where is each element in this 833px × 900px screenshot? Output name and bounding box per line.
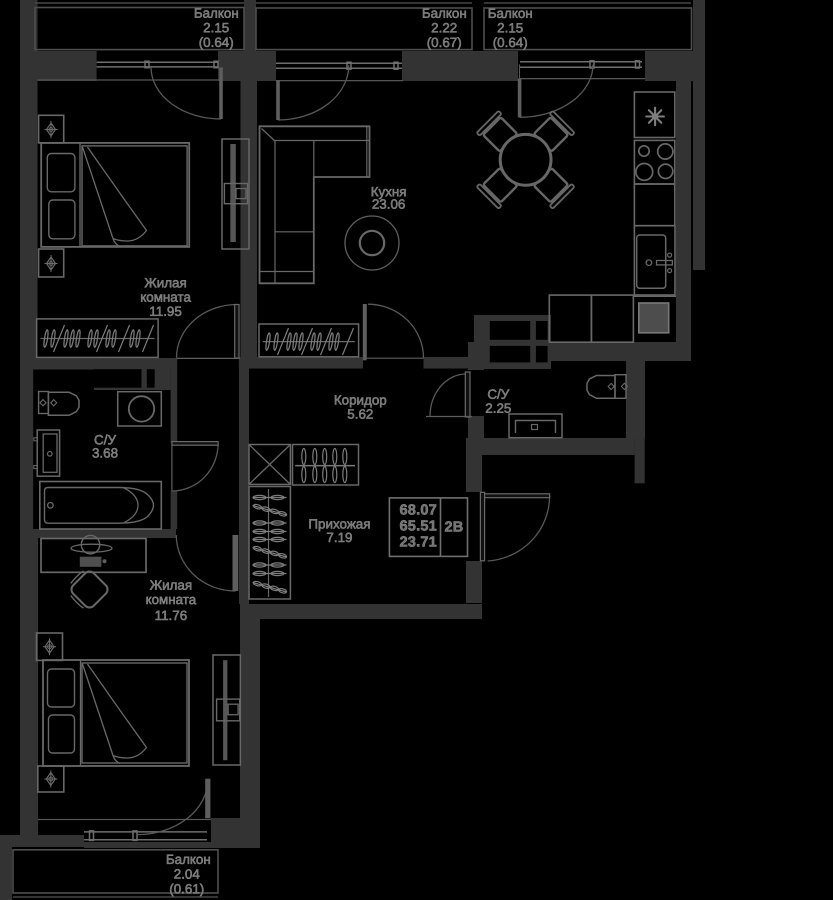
svg-text:2.04: 2.04 [174, 867, 201, 882]
svg-text:Жилая: Жилая [150, 578, 192, 593]
svg-text:Балкон: Балкон [422, 6, 467, 21]
svg-text:(0.64): (0.64) [493, 35, 528, 50]
svg-text:23.71: 23.71 [399, 534, 437, 550]
svg-text:(0.67): (0.67) [427, 35, 462, 50]
svg-text:11.76: 11.76 [155, 608, 188, 623]
svg-text:68.07: 68.07 [399, 502, 437, 518]
svg-text:3.68: 3.68 [92, 446, 118, 461]
svg-text:С/У: С/У [487, 387, 509, 402]
svg-text:Балкон: Балкон [166, 852, 211, 867]
svg-text:комната: комната [146, 592, 197, 607]
svg-text:2.15: 2.15 [203, 20, 229, 35]
svg-text:7.19: 7.19 [326, 530, 352, 545]
svg-text:2.15: 2.15 [497, 20, 523, 35]
svg-text:2.22: 2.22 [431, 20, 457, 35]
svg-text:23.06: 23.06 [372, 197, 406, 212]
svg-text:комната: комната [140, 290, 191, 305]
svg-text:Коридор: Коридор [334, 393, 387, 408]
svg-text:11.95: 11.95 [149, 304, 182, 319]
svg-text:2.25: 2.25 [485, 401, 511, 416]
svg-text:Жилая: Жилая [144, 275, 186, 290]
svg-text:Балкон: Балкон [488, 6, 533, 21]
svg-text:5.62: 5.62 [347, 407, 373, 422]
svg-text:2В: 2В [444, 520, 463, 536]
svg-text:65.51: 65.51 [399, 518, 437, 534]
svg-text:(0.61): (0.61) [169, 881, 204, 896]
svg-text:(0.64): (0.64) [199, 35, 234, 50]
svg-text:Балкон: Балкон [194, 6, 239, 21]
